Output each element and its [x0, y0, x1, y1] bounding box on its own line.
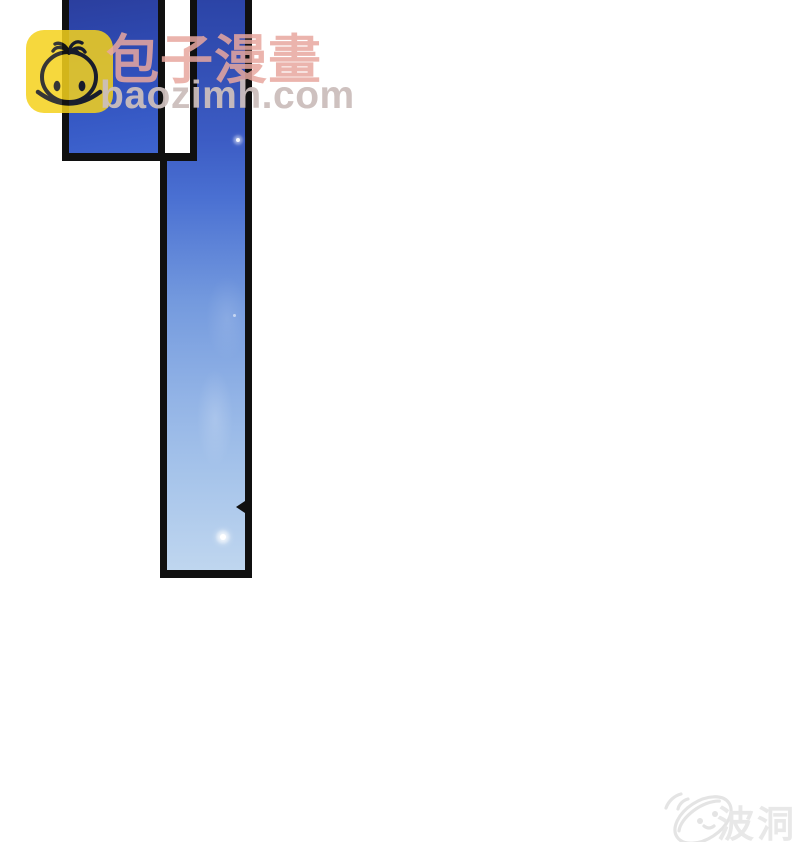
bodong-label: 波洞 [717, 794, 797, 846]
bodong-watermark: 波洞 [655, 782, 800, 844]
site-url: baozimh.com [100, 76, 355, 115]
comic-page: 包子漫畫 baozimh.com 波洞 [0, 0, 800, 846]
star-sparkle-large [220, 534, 226, 540]
star-sparkle-tiny [233, 314, 236, 317]
panel-border-notch [236, 501, 245, 513]
star-sparkle-small [236, 138, 240, 142]
